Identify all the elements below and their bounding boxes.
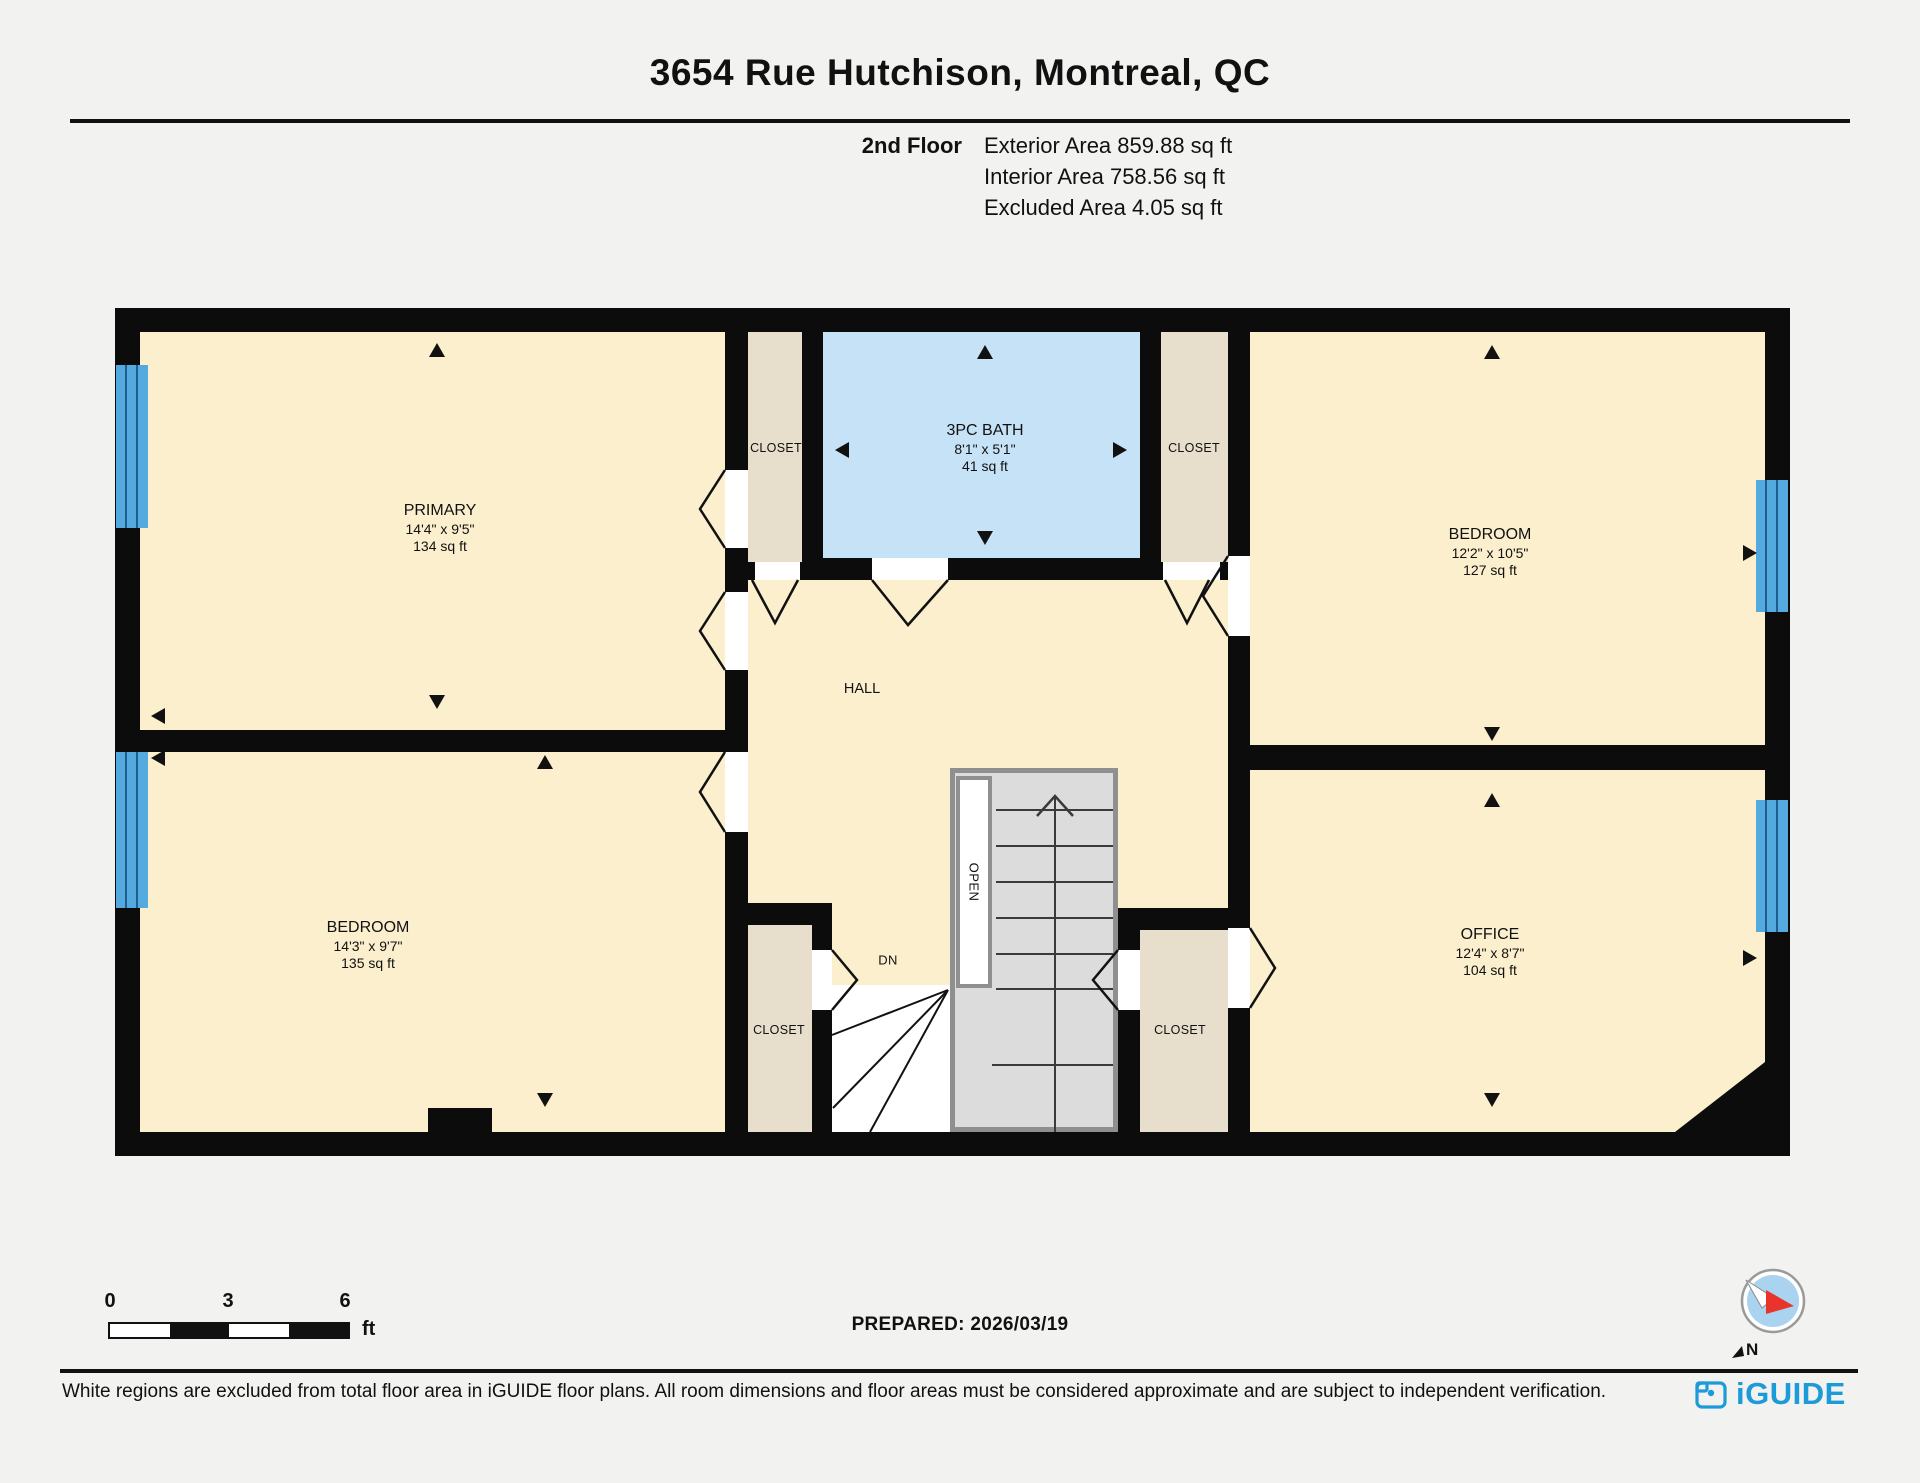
closet-tr-label: CLOSET xyxy=(1168,441,1220,455)
dim-arrow-down-primary xyxy=(429,695,445,709)
dim-arrow-up-office xyxy=(1484,793,1500,807)
dim-arrow-right-bath xyxy=(1113,442,1127,458)
dim-arrow-right-bedroom-tr xyxy=(1743,545,1757,561)
closet-bl-label: CLOSET xyxy=(753,1023,805,1037)
floor-label: 2nd Floor xyxy=(712,133,962,159)
stair-down-label: DN xyxy=(878,953,897,968)
interior-area: Interior Area 758.56 sq ft xyxy=(984,164,1225,190)
footer-disclaimer: White regions are excluded from total fl… xyxy=(62,1381,1606,1403)
dim-arrow-up-primary xyxy=(429,343,445,357)
dim-arrow-left-bedroom-bl xyxy=(151,750,165,766)
scale-tick-6: 6 xyxy=(339,1290,350,1313)
closet-br-label: CLOSET xyxy=(1154,1023,1206,1037)
bedroom-bl-label: BEDROOM 14'3" x 9'7" 135 sq ft xyxy=(327,918,410,972)
dim-arrow-up-bedroom-bl xyxy=(537,755,553,769)
dim-arrow-up-bedroom-tr xyxy=(1484,345,1500,359)
hall-label: HALL xyxy=(844,681,880,699)
scale-tick-3: 3 xyxy=(222,1290,233,1313)
door-swings xyxy=(700,470,1275,1010)
dim-arrow-down-bedroom-bl xyxy=(537,1093,553,1107)
excluded-area: Excluded Area 4.05 sq ft xyxy=(984,195,1223,221)
page-title: 3654 Rue Hutchison, Montreal, QC xyxy=(0,52,1920,94)
iguide-logo: iGUIDE xyxy=(1694,1376,1846,1412)
dim-arrow-up-bath xyxy=(977,345,993,359)
dim-arrow-down-bedroom-tr xyxy=(1484,727,1500,741)
dim-arrow-down-office xyxy=(1484,1093,1500,1107)
bedroom-tr-label: BEDROOM 12'2" x 10'5" 127 sq ft xyxy=(1449,525,1532,579)
title-divider xyxy=(70,119,1850,123)
dim-arrow-left-bath xyxy=(835,442,849,458)
compass-north-arrow xyxy=(1730,1344,1746,1360)
compass-icon xyxy=(1728,1262,1818,1340)
primary-label: PRIMARY 14'4" x 9'5" 134 sq ft xyxy=(404,501,477,555)
iguide-camera-icon xyxy=(1694,1378,1730,1410)
compass-north-label: N xyxy=(1746,1340,1758,1360)
floor-plan-page: 3654 Rue Hutchison, Montreal, QC 2nd Flo… xyxy=(0,0,1920,1483)
dim-arrow-right-office xyxy=(1743,950,1757,966)
iguide-logo-text: iGUIDE xyxy=(1736,1376,1846,1412)
closet-tl-label: CLOSET xyxy=(750,441,802,455)
dim-arrow-left-primary xyxy=(151,708,165,724)
prepared-date: PREPARED: 2026/03/19 xyxy=(0,1314,1920,1336)
bath-label: 3PC BATH 8'1" x 5'1" 41 sq ft xyxy=(946,421,1023,475)
office-label: OFFICE 12'4" x 8'7" 104 sq ft xyxy=(1456,925,1525,979)
scale-tick-0: 0 xyxy=(104,1290,115,1313)
exterior-area: Exterior Area 859.88 sq ft xyxy=(984,133,1232,159)
footer-divider xyxy=(60,1369,1858,1373)
dim-arrow-down-bath xyxy=(977,531,993,545)
stair-open-label: OPEN xyxy=(967,863,982,902)
